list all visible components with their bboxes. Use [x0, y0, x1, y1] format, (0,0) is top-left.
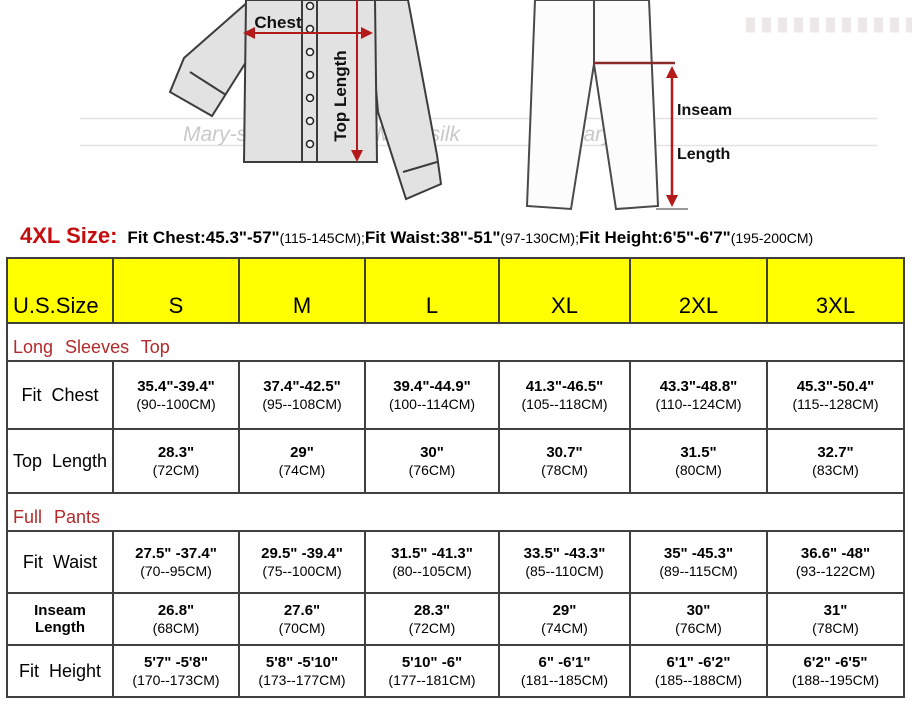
header-cell-l: L: [365, 258, 499, 323]
cell: 45.3"-50.4"(115--128CM): [767, 361, 904, 429]
left-sleeve: [170, 0, 250, 116]
header-cell-2xl: 2XL: [630, 258, 767, 323]
oversize-note: 4XL Size:Fit Chest:45.3"-57"(115-145CM);…: [20, 223, 914, 252]
cell: 6'1" -6'2"(185--188CM): [630, 645, 767, 697]
pajama-top-drawing: [170, 0, 441, 199]
cell: 41.3"-46.5"(105--118CM): [499, 361, 630, 429]
section-full-pants: Full Pants: [7, 493, 904, 531]
cell: 31"(78CM): [767, 593, 904, 645]
row-fit-chest: Fit Chest 35.4"-39.4"(90--100CM) 37.4"-4…: [7, 361, 904, 429]
cell: 5'7" -5'8"(170--173CM): [113, 645, 239, 697]
cell: 43.3"-48.8"(110--124CM): [630, 361, 767, 429]
inseam-label-line2: Length: [677, 146, 730, 163]
cell: 27.5" -37.4"(70--95CM): [113, 531, 239, 593]
note-waist-cm: (97-130CM);: [500, 230, 579, 246]
row-label: Fit Chest: [7, 361, 113, 429]
left-leg: [527, 0, 594, 209]
cell: 39.4"-44.9"(100--114CM): [365, 361, 499, 429]
section-long-sleeves-top: Long Sleeves Top: [7, 323, 904, 361]
cell: 29"(74CM): [499, 593, 630, 645]
inseam-label-line1: Inseam: [677, 102, 732, 119]
cell: 31.5"(80CM): [630, 429, 767, 493]
cell: 29"(74CM): [239, 429, 365, 493]
cell: 28.3"(72CM): [365, 593, 499, 645]
chest-label: Chest: [254, 13, 302, 32]
row-fit-height: Fit Height 5'7" -5'8"(170--173CM) 5'8" -…: [7, 645, 904, 697]
top-length-label: Top Length: [331, 50, 350, 141]
cell: 35" -45.3"(89--115CM): [630, 531, 767, 593]
pajama-pants-drawing: [527, 0, 658, 209]
note-height-range: Fit Height:6'5"-6'7": [579, 228, 731, 247]
cell: 30"(76CM): [365, 429, 499, 493]
right-sleeve: [374, 0, 441, 199]
note-chest-range: Fit Chest:45.3"-57": [127, 228, 279, 247]
header-cell-3xl: 3XL: [767, 258, 904, 323]
cell: 31.5" -41.3"(80--105CM): [365, 531, 499, 593]
row-top-length: Top Length 28.3"(72CM) 29"(74CM) 30"(76C…: [7, 429, 904, 493]
cell: 32.7"(83CM): [767, 429, 904, 493]
size-chart-table: U.S.Size S M L XL 2XL 3XL Long Sleeves T…: [6, 257, 905, 698]
cell: 6" -6'1"(181--185CM): [499, 645, 630, 697]
row-inseam-length: Inseam Length 26.8"(68CM) 27.6"(70CM) 28…: [7, 593, 904, 645]
cell: 30.7"(78CM): [499, 429, 630, 493]
cell: 37.4"-42.5"(95--108CM): [239, 361, 365, 429]
note-waist-range: Fit Waist:38"-51": [365, 228, 500, 247]
measurement-illustration: Mary-silk Mary-silk Mary-silk Chest: [0, 0, 914, 222]
cell: 29.5" -39.4"(75--100CM): [239, 531, 365, 593]
note-height-cm: (195-200CM): [731, 230, 813, 246]
header-cell-xl: XL: [499, 258, 630, 323]
cell: 5'8" -5'10"(173--177CM): [239, 645, 365, 697]
cell: 30"(76CM): [630, 593, 767, 645]
header-cell-s: S: [113, 258, 239, 323]
row-label: Top Length: [7, 429, 113, 493]
header-cell-us-size: U.S.Size: [7, 258, 113, 323]
cell: 28.3"(72CM): [113, 429, 239, 493]
note-chest-cm: (115-145CM);: [280, 230, 365, 246]
inseam-arrow: [666, 66, 678, 207]
note-prefix: 4XL Size:: [20, 223, 117, 248]
table-header-row: U.S.Size S M L XL 2XL 3XL: [7, 258, 904, 323]
header-cell-m: M: [239, 258, 365, 323]
size-chart-image: Mary-silk Mary-silk Mary-silk Chest: [0, 0, 914, 710]
row-fit-waist: Fit Waist 27.5" -37.4"(70--95CM) 29.5" -…: [7, 531, 904, 593]
right-leg: [594, 0, 658, 209]
cell: 36.6" -48"(93--122CM): [767, 531, 904, 593]
row-label: Inseam Length: [7, 593, 113, 645]
cell: 5'10" -6"(177--181CM): [365, 645, 499, 697]
row-label: Fit Height: [7, 645, 113, 697]
cell: 26.8"(68CM): [113, 593, 239, 645]
cell: 35.4"-39.4"(90--100CM): [113, 361, 239, 429]
cell: 33.5" -43.3"(85--110CM): [499, 531, 630, 593]
cell: 27.6"(70CM): [239, 593, 365, 645]
cell: 6'2" -6'5"(188--195CM): [767, 645, 904, 697]
row-label: Fit Waist: [7, 531, 113, 593]
section-title: Long Sleeves Top: [7, 323, 904, 361]
section-title: Full Pants: [7, 493, 904, 531]
